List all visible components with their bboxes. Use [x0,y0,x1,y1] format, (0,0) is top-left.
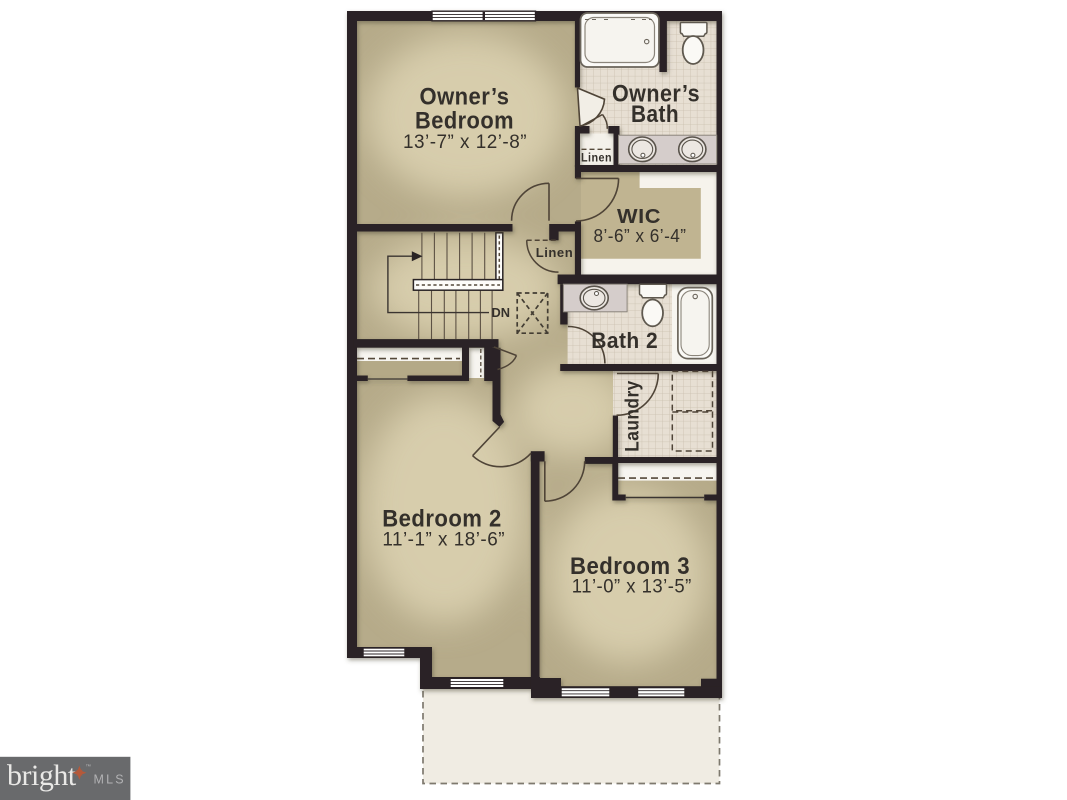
svg-text:Bedroom 2: Bedroom 2 [382,506,502,533]
svg-text:WIC: WIC [617,206,661,228]
svg-text:Laundry: Laundry [623,380,644,452]
svg-text:Linen: Linen [581,151,612,165]
svg-text:13’-7” x 12’-8”: 13’-7” x 12’-8” [403,131,527,153]
svg-text:11’-0” x 13’-5”: 11’-0” x 13’-5” [572,577,692,598]
svg-text:DN: DN [492,305,511,320]
svg-text:Bath 2: Bath 2 [591,328,658,353]
svg-text:Owner’s: Owner’s [420,84,510,111]
svg-text:11’-1” x 18’-6”: 11’-1” x 18’-6” [382,530,505,551]
svg-text:Bath: Bath [631,101,679,128]
svg-text:8’-6” x 6’-4”: 8’-6” x 6’-4” [594,226,687,246]
svg-text:Linen: Linen [536,246,574,260]
svg-text:bright: bright [7,759,77,792]
svg-text:MLS: MLS [94,773,126,787]
svg-text:™: ™ [86,764,92,770]
